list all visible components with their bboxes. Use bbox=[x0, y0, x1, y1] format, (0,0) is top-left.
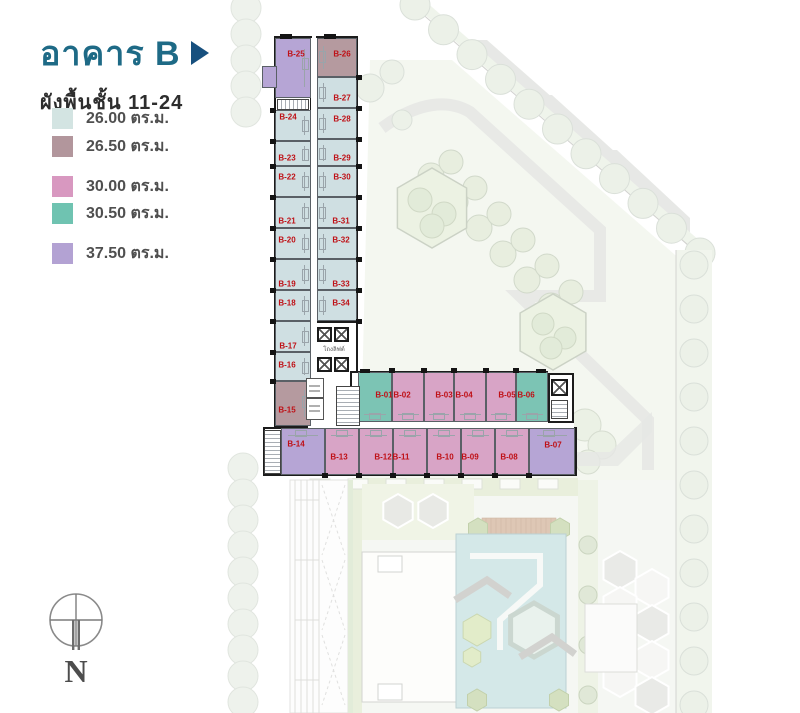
utility-room bbox=[306, 378, 324, 398]
wall-tick bbox=[356, 288, 362, 293]
unit-B-30: B-30 bbox=[317, 166, 357, 197]
unit-label: B-18 bbox=[278, 299, 295, 308]
wall-tick bbox=[356, 257, 362, 262]
unit-B-24: B-24 bbox=[275, 110, 311, 141]
wall-tick bbox=[390, 473, 396, 478]
wall-tick bbox=[356, 473, 362, 478]
wall-tick bbox=[356, 319, 362, 324]
wall-tick bbox=[483, 368, 489, 373]
stairwell-west-end bbox=[264, 430, 281, 474]
arrow-right-icon bbox=[191, 41, 209, 65]
wall-tick bbox=[270, 288, 276, 293]
unit-B-17: B-17 bbox=[275, 321, 311, 352]
unit-label: B-17 bbox=[279, 342, 296, 351]
unit-B-07: B-07 bbox=[529, 428, 575, 475]
unit-B-27: B-27 bbox=[317, 77, 357, 108]
wall-tick bbox=[270, 319, 276, 324]
unit-B-12: B-12 bbox=[359, 428, 393, 475]
stairwell bbox=[277, 99, 309, 110]
wall-tick bbox=[356, 195, 362, 200]
wall-tick bbox=[270, 195, 276, 200]
unit-label: B-09 bbox=[461, 453, 478, 462]
legend-swatch bbox=[52, 136, 73, 157]
unit-label: B-03 bbox=[435, 391, 452, 400]
wall-tick bbox=[360, 369, 370, 373]
legend-swatch bbox=[52, 243, 73, 264]
unit-label: B-19 bbox=[278, 280, 295, 289]
unit-label: B-32 bbox=[332, 236, 349, 245]
unit-B-19: B-19 bbox=[275, 259, 311, 290]
unit-B-26: B-26 bbox=[317, 38, 357, 77]
unit-label: B-28 bbox=[333, 115, 350, 124]
stairwell-east-end bbox=[551, 400, 568, 419]
wall-tick bbox=[270, 257, 276, 262]
legend-item-30.50: 30.50 ตร.ม. bbox=[52, 203, 169, 224]
wall-tick bbox=[451, 368, 457, 373]
elevator-icon bbox=[317, 357, 332, 372]
wall-tick bbox=[270, 350, 276, 355]
unit-label: B-25 bbox=[287, 50, 304, 59]
unit-label: B-08 bbox=[500, 453, 517, 462]
unit-label: B-20 bbox=[278, 236, 295, 245]
unit-label: B-27 bbox=[333, 94, 350, 103]
unit-label: B-30 bbox=[333, 173, 350, 182]
unit-B-21: B-21 bbox=[275, 197, 311, 228]
unit-label: B-14 bbox=[287, 440, 304, 449]
legend-label: 26.50 ตร.ม. bbox=[86, 134, 169, 159]
wall-tick bbox=[513, 368, 519, 373]
legend-label: 37.50 ตร.ม. bbox=[86, 241, 169, 266]
unit-B-34: B-34 bbox=[317, 290, 357, 321]
unit-label: B-11 bbox=[393, 453, 410, 462]
page-title: อาคาร B bbox=[40, 26, 181, 80]
unit-B-31: B-31 bbox=[317, 197, 357, 228]
elevator-icon bbox=[317, 327, 332, 342]
unit-B-23: B-23 bbox=[275, 141, 311, 166]
unit-B-33: B-33 bbox=[317, 259, 357, 290]
wall-tick bbox=[356, 75, 362, 80]
legend-swatch bbox=[52, 203, 73, 224]
unit-B-11: B-11 bbox=[393, 428, 427, 475]
unit-B-25: B-25 bbox=[275, 38, 311, 98]
legend-item-26.50: 26.50 ตร.ม. bbox=[52, 136, 169, 157]
wall-tick bbox=[270, 139, 276, 144]
elevator-icon bbox=[551, 379, 568, 396]
unit-label: B-31 bbox=[332, 217, 349, 226]
unit-B-08: B-08 bbox=[495, 428, 529, 475]
unit-B-14: B-14 bbox=[281, 428, 325, 475]
unit-label: B-21 bbox=[278, 217, 295, 226]
unit-B-10: B-10 bbox=[427, 428, 461, 475]
unit-B-16: B-16 bbox=[275, 352, 311, 381]
wall-tick bbox=[458, 473, 464, 478]
wall-tick bbox=[356, 137, 362, 142]
unit-label: B-26 bbox=[333, 50, 350, 59]
lift-lobby-label: โถงลิฟต์ bbox=[323, 344, 345, 354]
wall-tick bbox=[270, 164, 276, 169]
elevator-icon bbox=[334, 327, 349, 342]
wall-tick bbox=[389, 368, 395, 373]
unit-B-03: B-03 bbox=[424, 372, 454, 422]
wall-tick bbox=[324, 34, 336, 39]
wall-tick bbox=[421, 368, 427, 373]
legend-label: 26.00 ตร.ม. bbox=[86, 106, 169, 131]
unit-label: B-29 bbox=[333, 154, 350, 163]
unit-label: B-12 bbox=[374, 453, 391, 462]
wall-tick bbox=[526, 473, 532, 478]
legend-label: 30.00 ตร.ม. bbox=[86, 174, 169, 199]
unit-label: B-22 bbox=[278, 173, 295, 182]
wall-tick bbox=[280, 34, 292, 39]
wall-tick bbox=[356, 226, 362, 231]
unit-B-32: B-32 bbox=[317, 228, 357, 259]
wall-tick bbox=[536, 369, 546, 373]
wall-tick bbox=[424, 473, 430, 478]
legend-label: 30.50 ตร.ม. bbox=[86, 201, 169, 226]
elevator-icon bbox=[334, 357, 349, 372]
legend-swatch bbox=[52, 176, 73, 197]
unit-B-09: B-09 bbox=[461, 428, 495, 475]
unit-B-18: B-18 bbox=[275, 290, 311, 321]
compass-icon: N bbox=[38, 584, 118, 688]
wall-tick bbox=[356, 164, 362, 169]
unit-label: B-07 bbox=[544, 441, 561, 450]
unit-B-29: B-29 bbox=[317, 139, 357, 166]
core-stairwell bbox=[336, 386, 360, 426]
unit-label: B-16 bbox=[278, 361, 295, 370]
wall-tick bbox=[322, 473, 328, 478]
unit-label: B-33 bbox=[332, 280, 349, 289]
unit-B-02: B-02 bbox=[392, 372, 424, 422]
legend-swatch bbox=[52, 108, 73, 129]
compass-north-label: N bbox=[64, 653, 87, 688]
unit-label: B-04 bbox=[455, 391, 472, 400]
legend-item-26.00: 26.00 ตร.ม. bbox=[52, 108, 169, 129]
unit-label: B-23 bbox=[278, 154, 295, 163]
unit-label: B-05 bbox=[498, 391, 515, 400]
unit-label: B-02 bbox=[393, 391, 410, 400]
wall-tick bbox=[356, 106, 362, 111]
unit-label: B-06 bbox=[517, 391, 534, 400]
utility-room bbox=[306, 398, 324, 420]
unit-B-06: B-06 bbox=[516, 372, 548, 422]
floor-plan-page: อาคาร B ผังพื้นชั้น 11-24 26.00 ตร.ม.26.… bbox=[0, 0, 800, 713]
unit-label: B-15 bbox=[278, 406, 295, 415]
unit-B-13: B-13 bbox=[325, 428, 359, 475]
unit-label: B-34 bbox=[332, 299, 349, 308]
wall-tick bbox=[270, 226, 276, 231]
unit-label: B-01 bbox=[375, 391, 392, 400]
unit-B-20: B-20 bbox=[275, 228, 311, 259]
legend-item-30.00: 30.00 ตร.ม. bbox=[52, 176, 169, 197]
unit-B-22: B-22 bbox=[275, 166, 311, 197]
wall-tick bbox=[270, 379, 276, 384]
info-panel: อาคาร B ผังพื้นชั้น 11-24 bbox=[40, 26, 209, 118]
unit-B-04: B-04 bbox=[454, 372, 486, 422]
legend-item-37.50: 37.50 ตร.ม. bbox=[52, 243, 169, 264]
unit-label: B-10 bbox=[436, 453, 453, 462]
unit-B-28: B-28 bbox=[317, 108, 357, 139]
wall-tick bbox=[270, 108, 276, 113]
unit-label: B-24 bbox=[279, 113, 296, 122]
unit-B-01: B-01 bbox=[358, 372, 392, 422]
unit-B-25-annex bbox=[262, 66, 277, 88]
wall-tick bbox=[492, 473, 498, 478]
unit-B-05: B-05 bbox=[486, 372, 516, 422]
unit-label: B-13 bbox=[330, 453, 347, 462]
